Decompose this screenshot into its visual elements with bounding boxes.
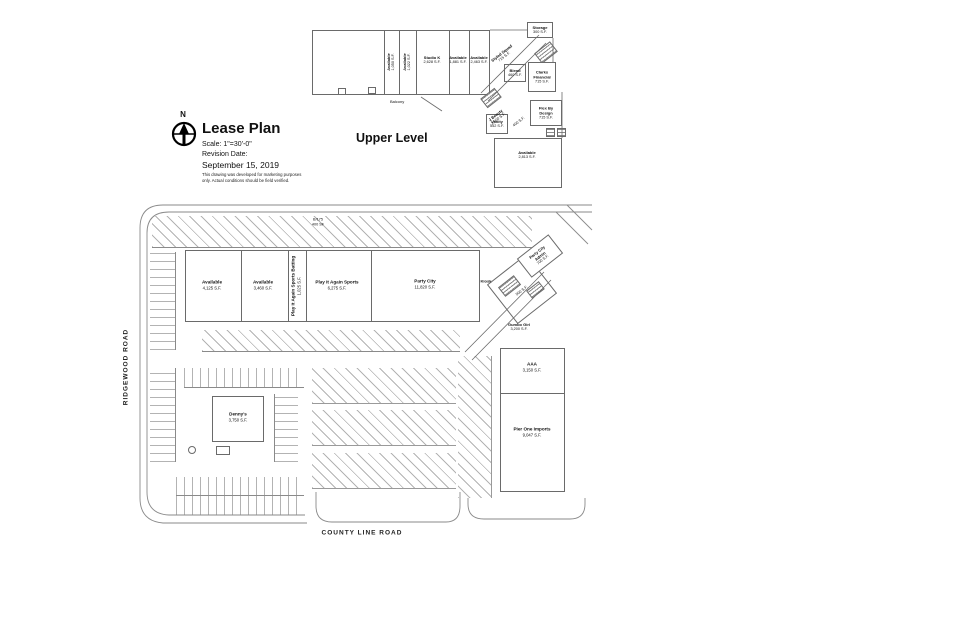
drawing-title: Lease Plan: [202, 120, 280, 137]
parking-block-center-2: [312, 368, 456, 404]
parking-note-line2: 400 SF: [312, 222, 324, 227]
main-unit-pia-batting: Play It Again Sports Batting 1,025 S.F.: [291, 256, 302, 316]
tenant-size: 552 S.F.: [490, 124, 504, 129]
tenant-size: 3,750 S.F.: [229, 417, 248, 422]
dumpster-enclosure: [216, 446, 230, 455]
east-unit-aaa: AAA 3,150 S.F.: [523, 362, 542, 373]
upper-unit-clarks-financial: Clarks Financial 715 S.F.: [529, 70, 555, 85]
upper-unit-available-3: Available 1,881 S.F.: [449, 55, 466, 65]
tenant-size: 6,275 S.F.: [315, 285, 358, 290]
north-compass-icon: [170, 120, 198, 153]
main-unit-available-4125: Available 4,125 S.F.: [202, 280, 222, 291]
tenant-size: 300 S.F.: [533, 30, 548, 35]
tenant-size: 1,050 S.F.: [391, 53, 396, 70]
tenant-name: Available: [202, 280, 222, 286]
unit-divider: [371, 251, 372, 321]
road-label-ridgewood: RIDGEWOOD ROAD: [123, 329, 130, 405]
parking-column-outparcel-east: [274, 394, 298, 462]
main-unit-available-3460: Available 3,460 S.F.: [253, 280, 273, 291]
tenant-name: Flex By Design: [533, 106, 559, 116]
upper-unit-vanity: Vanity 552 S.F.: [490, 119, 504, 129]
north-label: N: [170, 110, 196, 119]
corner-unit-kiosk: Kiosk: [481, 279, 492, 284]
tenant-size: 11,820 S.F.: [414, 284, 435, 289]
escalator-hatch: [526, 281, 545, 299]
unit-divider: [501, 393, 564, 394]
unit-divider: [416, 31, 417, 94]
upper-unit-available-2: Available 1,022 S.F.: [402, 53, 412, 70]
unit-divider: [241, 251, 242, 321]
upper-unit-studio-k: Studio K 2,628 S.F.: [423, 55, 440, 65]
tenant-size: 3,150 S.F.: [523, 367, 542, 372]
parking-row-southwest-2: [176, 496, 304, 515]
stair-hatch: [534, 41, 558, 64]
tenant-size: 1,022 S.F.: [407, 53, 412, 70]
tenant-name: Clarks Financial: [529, 70, 555, 80]
tenant-name: Kiosk: [481, 279, 492, 284]
balcony-label: Balcony: [390, 99, 404, 104]
revision-date-value: September 15, 2019: [202, 160, 279, 170]
site-marker: [188, 446, 196, 454]
elevator-shaft: [546, 128, 555, 137]
parking-block-center-4: [312, 453, 456, 489]
parking-row-north: [152, 216, 532, 248]
road-label-county-line: COUNTY LINE ROAD: [322, 530, 403, 537]
south-drive-edge: [316, 492, 460, 522]
parking-column-west-1: [150, 252, 176, 350]
south-east-drive-edge: [468, 498, 585, 519]
disclaimer-line-1: This drawing was developed for marketing…: [202, 172, 301, 177]
upper-unit-storage: Storage 300 S.F.: [533, 25, 548, 35]
corner-unit-gumbo-girl: Gumbo Girl 3,200 S.F.: [508, 322, 530, 332]
unit-divider: [306, 251, 307, 321]
tenant-size: 2,813 S.F.: [518, 155, 535, 160]
parking-row-center-1: [202, 330, 460, 352]
tenant-size: 2,628 S.F.: [423, 60, 440, 65]
unit-divider: [288, 251, 289, 321]
upper-level-heading: Upper Level: [356, 131, 428, 145]
parking-row-southwest-1: [176, 477, 304, 496]
drawing-scale: Scale: 1"=30'-0": [202, 141, 252, 148]
storefront-column: [368, 87, 376, 94]
east-unit-pier-one-imports: Pier One Imports 9,047 S.F.: [513, 427, 550, 438]
parking-note: B/175 400 SF: [312, 217, 324, 226]
tenant-size: 2,463 S.F.: [470, 60, 487, 65]
tenant-name: Available: [253, 280, 273, 286]
upper-unit-available-4: Available 2,463 S.F.: [470, 55, 487, 65]
upper-unit-flex-by-design: Flex By Design 715 S.F.: [533, 106, 559, 121]
tenant-size: 715 S.F.: [533, 116, 559, 121]
entrance-diagonal-2: [567, 205, 592, 230]
upper-unit-available-2813: Available 2,813 S.F.: [518, 150, 535, 160]
upper-unit-blend: Blend 460 S.F.: [508, 68, 522, 78]
entrance-diagonal-1: [556, 212, 588, 244]
tenant-name: Play It Again Sports Batting: [291, 256, 297, 316]
tenant-name: Party City: [414, 279, 435, 285]
site-linework: [0, 0, 960, 640]
upper-available-suite: [494, 138, 562, 188]
balcony-leader-line: [421, 97, 442, 111]
tenant-size: 400 S.F.: [512, 116, 526, 128]
parking-block-center-3: [312, 410, 456, 446]
outparcel-unit-dennys: Denny's 3,750 S.F.: [229, 412, 248, 423]
unit-divider: [399, 31, 400, 94]
tenant-size: 715 S.F.: [529, 80, 555, 85]
upper-unit-400sf: 400 S.F.: [512, 116, 526, 128]
tenant-size: 9,047 S.F.: [513, 432, 550, 437]
tenant-size: 3,200 S.F.: [508, 327, 530, 332]
parking-column-west-2: [150, 368, 176, 462]
main-unit-play-it-again-sports: Play It Again Sports 6,275 S.F.: [315, 280, 358, 291]
tenant-name: Pier One Imports: [513, 427, 550, 433]
lease-plan-drawing: N Lease Plan Scale: 1"=30'-0" Revision D…: [0, 0, 960, 640]
elevator-shaft: [557, 128, 566, 137]
disclaimer-line-2: only. Actual conditions should be field …: [202, 178, 289, 183]
unit-divider: [384, 31, 385, 94]
tenant-size: 1,025 S.F.: [296, 256, 301, 316]
parking-row-outparcel-north: [184, 368, 304, 388]
tenant-size: 460 S.F.: [508, 73, 522, 78]
parking-strip-diagonal: [458, 356, 492, 498]
revision-date-label: Revision Date:: [202, 151, 248, 158]
main-unit-party-city: Party City 11,820 S.F.: [414, 279, 435, 290]
tenant-name: Denny's: [229, 412, 248, 418]
upper-unit-available-1: Available 1,050 S.F.: [386, 53, 396, 70]
tenant-name: Play It Again Sports: [315, 280, 358, 286]
tenant-size: 1,881 S.F.: [449, 60, 466, 65]
tenant-size: 4,125 S.F.: [202, 285, 222, 290]
tenant-size: 3,460 S.F.: [253, 285, 273, 290]
storefront-column: [338, 88, 346, 95]
